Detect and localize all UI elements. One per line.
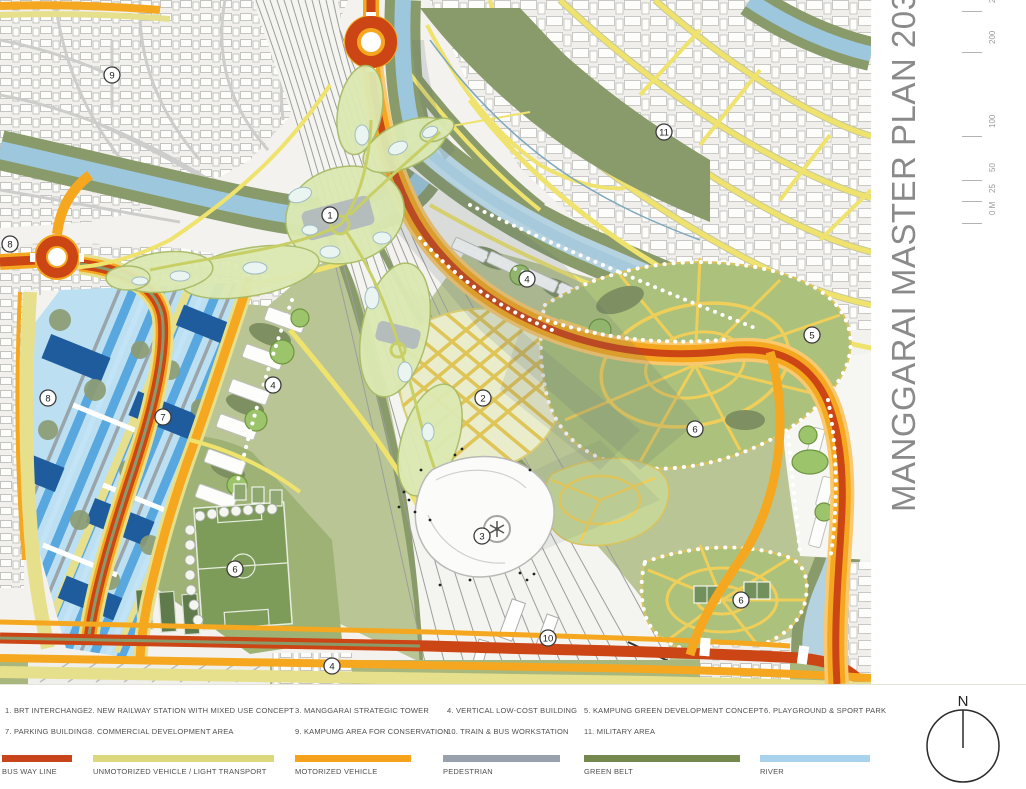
legend-swatch xyxy=(584,755,740,762)
legend-swatch xyxy=(2,755,72,762)
map-canvas: 123444566678891011 xyxy=(0,0,871,684)
scale-tick: 50 xyxy=(962,175,1026,187)
legend-item: 8. COMMERCIAL DEVELOPMENT AREA xyxy=(88,727,234,736)
map-marker-4: 4 xyxy=(324,658,340,674)
scale-tick: 250 xyxy=(962,6,1026,18)
legend-item: 5. KAMPUNG GREEN DEVELOPMENT CONCEPT xyxy=(584,706,764,715)
legend-swatch-label: RIVER xyxy=(760,767,784,776)
north-compass: N xyxy=(918,694,1010,788)
tick-line xyxy=(962,52,982,53)
legend-swatch-label: MOTORIZED VEHICLE xyxy=(295,767,377,776)
map-marker-8: 8 xyxy=(40,390,56,406)
svg-text:8: 8 xyxy=(7,239,12,250)
legend-swatch xyxy=(295,755,411,762)
legend-item: 10. TRAIN & BUS WORKSTATION xyxy=(447,727,569,736)
master-plan-sheet: 123444566678891011 MANGGARAI MASTER PLAN… xyxy=(0,0,1026,789)
tick-line xyxy=(962,223,982,224)
map-marker-11: 11 xyxy=(656,124,672,140)
tick-label: 200 xyxy=(988,31,997,44)
north-label: N xyxy=(958,694,969,710)
legend-item: 2. NEW RAILWAY STATION WITH MIXED USE CO… xyxy=(88,706,294,715)
tick-line xyxy=(962,201,982,202)
legend-swatch-label: GREEN BELT xyxy=(584,767,633,776)
map-marker-1: 1 xyxy=(322,207,338,223)
svg-text:9: 9 xyxy=(109,70,114,81)
legend-item: 1. BRT INTERCHANGE xyxy=(5,706,88,715)
master-plan-map: 123444566678891011 xyxy=(0,0,871,684)
svg-text:4: 4 xyxy=(270,380,275,391)
map-marker-7: 7 xyxy=(155,409,171,425)
scale-tick: 200 xyxy=(962,47,1026,59)
legend-item: 6. PLAYGROUND & SPORT PARK xyxy=(764,706,886,715)
tick-label: 250 xyxy=(988,0,997,3)
legend-swatch-label: UNMOTORIZED VEHICLE / LIGHT TRANSPORT xyxy=(93,767,267,776)
tick-label: 50 xyxy=(988,163,997,172)
tick-line xyxy=(962,136,982,137)
svg-text:3: 3 xyxy=(479,531,484,542)
svg-text:4: 4 xyxy=(329,661,334,672)
legend-item: 3. MANGGARAI STRATEGIC TOWER xyxy=(295,706,429,715)
svg-text:7: 7 xyxy=(160,412,165,423)
svg-text:6: 6 xyxy=(232,564,237,575)
tick-line xyxy=(962,180,982,181)
map-marker-4: 4 xyxy=(519,271,535,287)
legend: 1. BRT INTERCHANGE2. NEW RAILWAY STATION… xyxy=(0,684,1026,789)
map-marker-6: 6 xyxy=(687,421,703,437)
svg-text:10: 10 xyxy=(543,633,554,644)
svg-text:6: 6 xyxy=(692,424,697,435)
legend-swatch xyxy=(93,755,274,762)
svg-text:5: 5 xyxy=(809,330,814,341)
map-marker-2: 2 xyxy=(475,390,491,406)
scale-tick: 100 xyxy=(962,131,1026,143)
map-marker-3: 3 xyxy=(474,528,490,544)
scale-tick: 25 xyxy=(962,196,1026,208)
svg-text:6: 6 xyxy=(738,595,743,606)
legend-swatch-label: BUS WAY LINE xyxy=(2,767,57,776)
svg-text:2: 2 xyxy=(480,393,485,404)
svg-text:4: 4 xyxy=(524,274,529,285)
legend-item: 11. MILITARY AREA xyxy=(584,727,655,736)
map-marker-6: 6 xyxy=(733,592,749,608)
legend-swatch xyxy=(760,755,870,762)
map-marker-6: 6 xyxy=(227,561,243,577)
tick-line xyxy=(962,11,982,12)
page-title: MANGGARAI MASTER PLAN 2030 xyxy=(874,2,934,512)
legend-item: 7. PARKING BUILDING xyxy=(5,727,88,736)
map-marker-8: 8 xyxy=(2,236,18,252)
scale-tick: 0 M xyxy=(962,218,1026,230)
legend-item: 9. KAMPUMG AREA FOR CONSERVATION xyxy=(295,727,449,736)
legend-swatch-label: PEDESTRIAN xyxy=(443,767,493,776)
map-marker-4: 4 xyxy=(265,377,281,393)
legend-item: 4. VERTICAL LOW-COST BUILDING xyxy=(447,706,577,715)
scale-bar: 0 M2550100200250 xyxy=(950,0,1026,240)
legend-swatch xyxy=(443,755,560,762)
map-marker-10: 10 xyxy=(540,630,556,646)
svg-text:8: 8 xyxy=(45,393,50,404)
svg-text:1: 1 xyxy=(327,210,332,221)
map-marker-9: 9 xyxy=(104,67,120,83)
svg-text:11: 11 xyxy=(659,127,669,138)
tick-label: 100 xyxy=(988,115,997,128)
map-marker-5: 5 xyxy=(804,327,820,343)
